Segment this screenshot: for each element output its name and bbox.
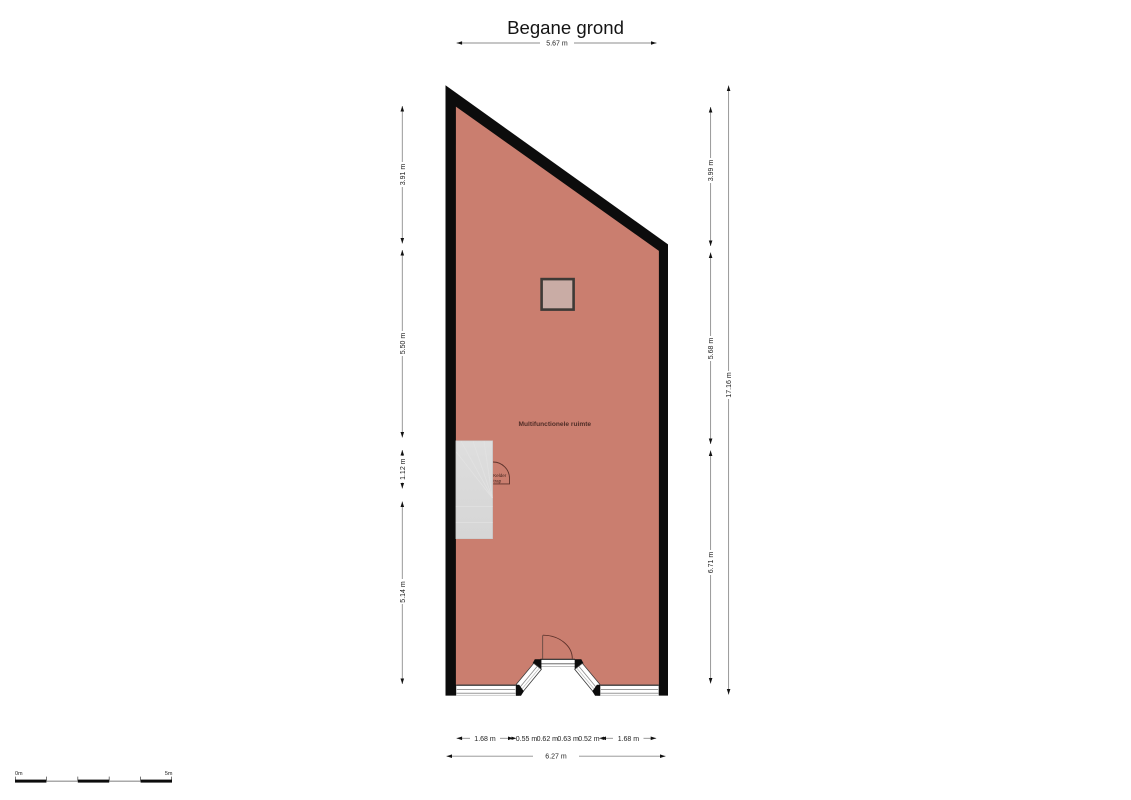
svg-text:1.68 m: 1.68 m	[474, 736, 496, 743]
svg-text:3.91 m: 3.91 m	[400, 164, 407, 186]
svg-text:5.67 m: 5.67 m	[546, 41, 568, 48]
svg-text:Begane grond: Begane grond	[507, 17, 624, 38]
svg-text:5m: 5m	[165, 771, 173, 777]
svg-text:0m: 0m	[15, 771, 23, 777]
svg-text:5.50 m: 5.50 m	[400, 333, 407, 355]
svg-text:trap: trap	[493, 479, 501, 484]
svg-text:0.62 m: 0.62 m	[537, 736, 559, 743]
svg-text:6.27 m: 6.27 m	[545, 754, 567, 761]
svg-text:0.55 m: 0.55 m	[516, 736, 538, 743]
svg-text:Multifunctionele ruimte: Multifunctionele ruimte	[519, 421, 592, 428]
svg-text:0.63 m: 0.63 m	[557, 736, 579, 743]
svg-text:5.68 m: 5.68 m	[708, 338, 715, 360]
svg-text:5.14 m: 5.14 m	[400, 581, 407, 603]
svg-text:17.16 m: 17.16 m	[726, 372, 733, 397]
svg-text:1.68 m: 1.68 m	[618, 736, 640, 743]
svg-text:Kelder: Kelder	[493, 473, 507, 478]
svg-text:1.12 m: 1.12 m	[400, 458, 407, 480]
svg-text:0.52 m: 0.52 m	[578, 736, 600, 743]
svg-text:6.71 m: 6.71 m	[708, 552, 715, 574]
svg-text:3.99 m: 3.99 m	[708, 160, 715, 182]
